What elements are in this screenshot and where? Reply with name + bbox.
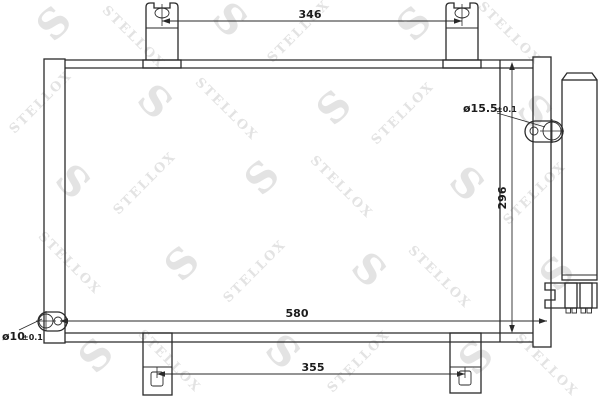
top-bracket-right [443, 3, 481, 68]
dimension-overall-width-label: 580 [286, 307, 309, 320]
dimension-core-height: 296 [496, 62, 515, 333]
dimension-core-height-label: 296 [496, 186, 509, 209]
right-tank [533, 57, 551, 347]
bottom-fitting-tolerance: ±0.1 [22, 333, 43, 342]
dimension-bottom-width-label: 355 [302, 361, 325, 374]
top-fitting: ø15.5 ±0.1 [463, 102, 564, 143]
top-bracket-left [143, 3, 181, 68]
bracket-foot [443, 60, 481, 68]
drier-port-foot [581, 308, 586, 313]
drier-port [565, 283, 577, 308]
bracket-foot [143, 60, 181, 68]
left-tank [44, 59, 65, 343]
receiver-drier [545, 73, 597, 313]
dimension-overall-width: 580 [60, 307, 547, 324]
drier-port [580, 283, 592, 308]
dimension-top-width-label: 346 [299, 8, 322, 21]
drier-port-foot [572, 308, 577, 313]
drier-port-foot [566, 308, 571, 313]
condenser-diagram: 346 580 296 355 [0, 0, 600, 400]
leader-line [497, 113, 545, 127]
technical-drawing-canvas: S STELLOX S STELLOX S STELLOX STELLOX S … [0, 0, 600, 400]
top-fitting-tolerance: ±0.1 [496, 105, 517, 114]
dimension-bottom-width: 355 [157, 361, 465, 377]
drier-bottom-block [545, 283, 597, 308]
top-fitting-label: ø15.5 [463, 102, 498, 115]
drier-port-foot [587, 308, 592, 313]
dimension-top-width: 346 [162, 8, 462, 24]
bottom-fitting: ø10 ±0.1 [2, 311, 67, 343]
